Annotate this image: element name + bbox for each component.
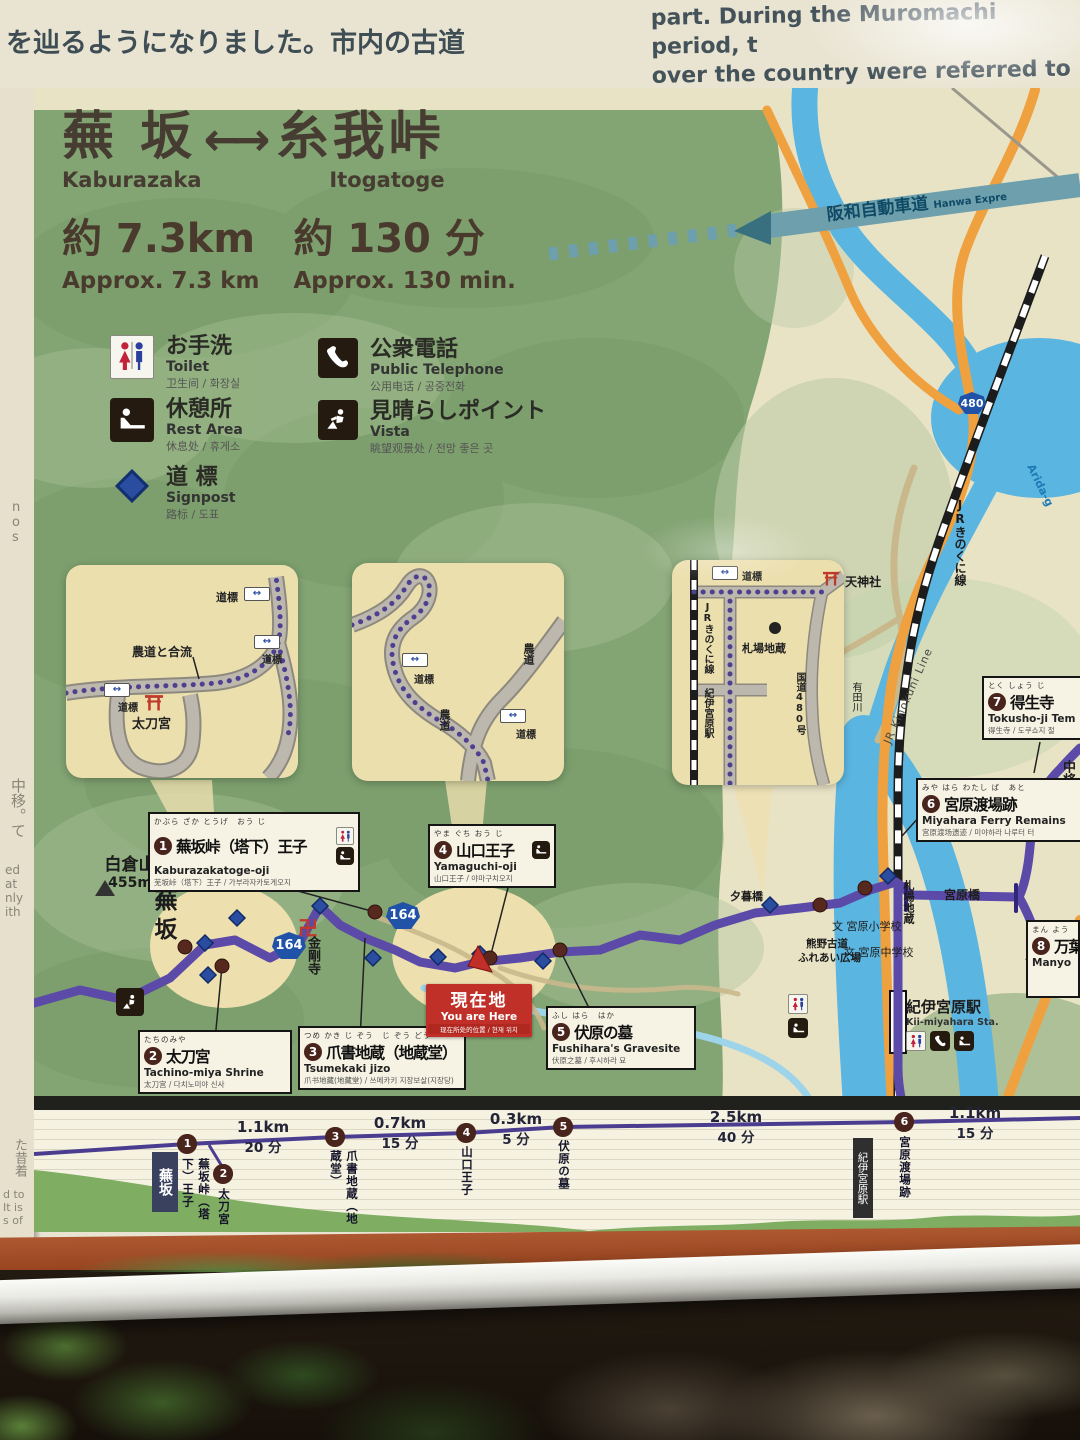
farm-road-note: 農道 <box>520 643 536 665</box>
vista-icon <box>318 400 358 440</box>
origin-name: 蕪 坂 Kaburazaka <box>62 108 201 192</box>
legend-label-cjk: 卫生间 / 화장실 <box>166 375 240 391</box>
segment-km: 2.5km <box>691 1108 781 1126</box>
spot-box-kaburazakatoge-oji: かぶら ざか とうげ おう じ 1 蕪坂峠（塔下）王子 Kaburazakato… <box>148 812 360 892</box>
toilet-icon <box>906 1031 926 1051</box>
toilet-icon <box>336 827 354 845</box>
spot-box-miyahara-ferry: みや はら わたし ば あと 6 宮原渡場跡 Miyahara Ferry Re… <box>916 778 1080 842</box>
legend-label-en: Public Telephone <box>370 362 504 378</box>
segment-km: 0.3km <box>471 1110 561 1128</box>
rest-area-icon <box>336 847 354 865</box>
spot-name-jp: 伏原の墓 <box>574 1021 632 1043</box>
segment-min: 15 分 <box>930 1122 1020 1142</box>
legend-label-en: Vista <box>370 424 546 440</box>
signpost-note: 道標 <box>516 726 536 741</box>
spot-furigana: かぶら ざか とうげ おう じ <box>154 816 354 827</box>
spot-box-manyo: まん よう 8 万葉 Manyo <box>1026 920 1080 998</box>
profile-stop-number: 3 <box>326 1127 345 1146</box>
time-en: Approx. 130 min. <box>293 268 515 294</box>
legend-label-jp: 休憩所 <box>166 398 243 422</box>
spot-name-cjk: 得生寺 / 도쿠쇼지 절 <box>988 725 1076 736</box>
profile-stop-label: 宮原渡場跡 <box>897 1136 913 1216</box>
spot-number-badge: 1 <box>154 837 172 855</box>
public-telephone-icon <box>318 338 358 378</box>
blue-sign-icon: ↔ <box>254 635 280 649</box>
jizo-dot <box>769 622 781 634</box>
legend-label-en: Signpost <box>166 490 236 506</box>
profile-stop-label: 蕪坂峠（塔下）王子 <box>180 1158 212 1232</box>
spot-name-cjk: 山口王子 / 야마구치오지 <box>434 873 550 884</box>
profile-stop-label: 太刀宮 <box>216 1188 232 1232</box>
toilet-icon <box>788 994 808 1014</box>
junior-high-label: 文 宮原中学校 <box>844 944 914 960</box>
legend-label-cjk: 公用电话 / 공중전화 <box>370 378 504 394</box>
spot-furigana: ふし はら はか <box>552 1010 690 1021</box>
legend-label-cjk: 眺望观景处 / 전망 좋은 곳 <box>370 440 546 456</box>
origin-name-romaji: Kaburazaka <box>62 168 201 192</box>
spot-name-en: Fushihara's Gravesite <box>552 1043 690 1055</box>
tenjin-shrine-text: 天神社 <box>845 575 881 589</box>
legend-label-cjk: 休息处 / 휴게소 <box>166 438 243 454</box>
spot-name-cjk: 宫原渡场遗迹 / 미야하라 나루터 터 <box>922 827 1078 838</box>
spot-furigana: やま ぐち おう じ <box>434 828 550 839</box>
distance-jp: 約 7.3km <box>62 206 259 264</box>
spot-name-en: Yamaguchi-oji <box>434 861 550 873</box>
spot-name-jp: 宮原渡場跡 <box>944 793 1017 815</box>
arida-river-jp-label: 有田川 <box>848 682 863 712</box>
station-jp: 紀伊宮原駅 <box>906 996 999 1017</box>
route-title-block: 蕪 坂 Kaburazaka ←→ 糸我峠 Itogatoge 約 7.3km … <box>62 108 542 294</box>
legend-item-toilet: お手洗 Toilet 卫生间 / 화장실 <box>110 335 240 391</box>
inset3-roads <box>672 560 844 785</box>
spot-name-en: Miyahara Ferry Remains <box>922 815 1078 827</box>
segment-km: 1.1km <box>218 1118 308 1136</box>
spot-box-yamaguchi-oji: やま ぐち おう じ 4 山口王子 Yamaguchi-oji 山口王子 / 야… <box>428 824 556 888</box>
signboard-photo: を辿るようになりました。市内の古道 ができます。 part. During th… <box>0 0 1080 1440</box>
segment-km: 0.7km <box>355 1114 445 1132</box>
profile-stop-number: 1 <box>178 1134 197 1153</box>
segment-distance: 0.7km 15 分 <box>355 1114 445 1152</box>
fudaba-jizo-note: 札場地蔵 <box>742 640 786 656</box>
spot-name-jp: 得生寺 <box>1010 691 1054 713</box>
junior-high-text: 宮原中学校 <box>859 946 914 959</box>
segment-distance: 2.5km 40 分 <box>691 1108 781 1146</box>
you-are-here-box: 現在地 You are Here 现在所处的位置 / 현재 위치 <box>426 984 532 1037</box>
destination-name-romaji: Itogatoge <box>277 168 445 192</box>
legend-label-jp: 道 標 <box>166 466 236 490</box>
inset-map-farm-roads: ↔ 道標 ↔ 道標 農道 農道 <box>352 563 564 781</box>
profile-stop-label: 爪書地蔵（地蔵堂） <box>328 1150 360 1232</box>
spot-number-badge: 5 <box>552 1023 570 1041</box>
jr-line-note: JRきのくに線 <box>700 602 715 674</box>
spot-furigana: とく しょう じ <box>988 680 1076 691</box>
segment-min: 15 分 <box>355 1132 445 1152</box>
spot-name-cjk: 芜坂峠（塔下）王子 / 가부라자카토게오지 <box>154 877 354 888</box>
toilet-icon <box>110 335 154 379</box>
blue-sign-icon: ↔ <box>244 587 270 601</box>
segment-min: 5 分 <box>471 1128 561 1148</box>
tachinomiya-note: 太刀宮 <box>132 713 171 732</box>
signpost-note: 道標 <box>262 651 282 666</box>
route-480-note: 国道480号 <box>792 672 807 735</box>
spot-name-en: Kaburazakatoge-oji <box>154 865 354 877</box>
profile-stop-number: 6 <box>895 1112 914 1131</box>
edge-fragment: n o s <box>12 500 20 545</box>
destination-name-jp: 糸我峠 <box>277 108 445 166</box>
legend-item-signpost: 道 標 Signpost 路标 / 도표 <box>116 466 236 522</box>
legend-item-rest-area: 休憩所 Rest Area 休息处 / 휴게소 <box>110 398 243 454</box>
destination-name: 糸我峠 Itogatoge <box>277 108 445 192</box>
public-telephone-icon <box>930 1031 950 1051</box>
edge-fragment: ed at nly ith <box>5 863 23 919</box>
time-jp: 約 130 分 <box>293 206 515 264</box>
legend-label-en: Rest Area <box>166 422 243 438</box>
spot-box-tokushoji: とく しょう じ 7 得生寺 Tokusho-ji Tem 得生寺 / 도쿠쇼지… <box>982 676 1080 740</box>
signpost-icon <box>115 469 149 503</box>
you-are-here-cjk: 现在所处的位置 / 현재 위치 <box>428 1024 530 1034</box>
profile-stop-label: 伏原の墓 <box>556 1140 572 1218</box>
spot-furigana: みや はら わたし ば あと <box>922 782 1078 793</box>
legend-label-en: Toilet <box>166 359 240 375</box>
kii-miyahara-station-label: 紀伊宮原駅 Kii-miyahara Sta. <box>906 996 999 1051</box>
inset2-roads <box>352 563 564 781</box>
elementary-school-text: 宮原小学校 <box>847 920 902 933</box>
signpost-note: 道標 <box>118 699 138 714</box>
inset-map-tachinomiya: ↔ ↔ ↔ 道標 道標 道標 農道と合流 太刀宮 <box>66 565 298 778</box>
spot-name-jp: 爪書地蔵（地蔵堂） <box>326 1041 457 1063</box>
rest-area-icon <box>788 1018 808 1038</box>
vista-icon <box>116 988 144 1016</box>
tenjin-shrine-label: 天神社 <box>822 570 881 590</box>
school-mark-icon: 文 <box>844 946 855 959</box>
distance-en: Approx. 7.3 km <box>62 268 259 294</box>
spot-name-en: Manyo <box>1032 957 1074 969</box>
blue-sign-icon: ↔ <box>104 683 130 697</box>
blue-sign-icon: ↔ <box>500 709 526 723</box>
legend-label-jp: お手洗 <box>166 335 240 359</box>
spot-furigana: まん よう <box>1032 924 1074 935</box>
legend-label-jp: 見晴らしポイント <box>370 400 546 424</box>
kaburazaka-label: 蕪坂 <box>146 888 180 946</box>
spot-box-tachinomiya: たちのみや 2 太刀宮 Tachino-miya Shrine 太刀宫 / 다치… <box>138 1030 292 1094</box>
signpost-note: 道標 <box>414 671 434 686</box>
profile-stop-label: 山口王子 <box>459 1146 475 1216</box>
profile-start-box: 蕪坂 <box>152 1152 178 1212</box>
profile-terminus-box: 紀伊宮原駅 <box>853 1138 873 1218</box>
route-time: 約 130 分 Approx. 130 min. <box>293 206 515 294</box>
farm-road-merge-note: 農道と合流 <box>132 643 192 660</box>
edge-fragment: た昔着 <box>10 1138 29 1177</box>
double-arrow-icon: ←→ <box>203 112 260 166</box>
spot-name-jp: 蕪坂峠（塔下）王子 <box>176 835 307 857</box>
spot-name-cjk: 伏原之墓 / 후시하라 묘 <box>552 1055 690 1066</box>
route-distance: 約 7.3km Approx. 7.3 km <box>62 206 259 294</box>
spot-box-fushihara-gravesite: ふし はら はか 5 伏原の墓 Fushihara's Gravesite 伏原… <box>546 1006 696 1070</box>
school-mark-icon: 文 <box>832 920 843 933</box>
trail-signboard: を辿るようになりました。市内の古道 ができます。 part. During th… <box>0 0 1080 1268</box>
segment-distance: 1.1km 15 分 <box>930 1104 1020 1142</box>
segment-min: 40 分 <box>691 1126 781 1146</box>
segment-min: 20 分 <box>218 1136 308 1156</box>
kongoji-label: 金剛寺 <box>303 936 322 975</box>
spot-number-badge: 7 <box>988 693 1006 711</box>
legend-item-public-telephone: 公衆電話 Public Telephone 公用电话 / 공중전화 <box>318 338 504 394</box>
yugure-bridge-label: 夕暮橋 <box>730 888 763 904</box>
legend-label-cjk: 路标 / 도표 <box>166 506 236 522</box>
blue-sign-icon: ↔ <box>402 653 428 667</box>
spot-name-cjk: 太刀宫 / 다치노미야 신사 <box>144 1079 286 1090</box>
station-note: 紀伊宮原駅 <box>700 688 715 738</box>
spot-name-en: Tokusho-ji Tem <box>988 713 1076 725</box>
spot-number-badge: 6 <box>922 795 940 813</box>
legend-label-jp: 公衆電話 <box>370 338 504 362</box>
spot-number-badge: 2 <box>144 1047 162 1065</box>
adjacent-panel-edge: n o s 中移。て ed at nly ith た昔着 d to It is … <box>0 88 34 1268</box>
spot-name-jp: 万葉 <box>1054 935 1080 957</box>
edge-fragment: 中移。て <box>8 778 29 838</box>
spot-furigana: たちのみや <box>144 1034 286 1045</box>
you-are-here-en: You are Here <box>428 1011 530 1023</box>
segment-distance: 1.1km 20 分 <box>218 1118 308 1156</box>
profile-stop-number: 2 <box>214 1164 233 1183</box>
elementary-school-label: 文 宮原小学校 <box>832 918 902 934</box>
fudaba-jizo-label: 札場地蔵 <box>900 880 916 924</box>
spot-number-badge: 3 <box>304 1043 322 1061</box>
segment-distance: 0.3km 5 分 <box>471 1110 561 1148</box>
spot-number-badge: 8 <box>1032 937 1050 955</box>
glare-reflection <box>640 515 810 585</box>
spot-number-badge: 4 <box>434 841 452 859</box>
edge-fragment: d to It is s of <box>3 1188 25 1227</box>
rest-area-icon <box>532 841 550 859</box>
station-en: Kii-miyahara Sta. <box>906 1017 999 1028</box>
jr-line-jp-label: JRきのくに線 <box>952 498 969 586</box>
rest-area-icon <box>110 398 154 442</box>
inset-map-station-area: ↔ 道標 JRきのくに線 紀伊宮原駅 札場地蔵 国道480号 <box>672 560 844 785</box>
origin-name-jp: 蕪 坂 <box>62 108 201 166</box>
torii-icon <box>144 693 164 711</box>
rest-area-icon <box>954 1031 974 1051</box>
spot-name-en: Tachino-miya Shrine <box>144 1067 286 1079</box>
you-are-here-jp: 現在地 <box>428 986 530 1011</box>
spot-name-en: Tsumekaki jizo <box>304 1063 460 1075</box>
farm-road-note: 農道 <box>436 709 452 731</box>
legend-item-vista: 見晴らしポイント Vista 眺望观景处 / 전망 좋은 곳 <box>318 400 546 456</box>
segment-km: 1.1km <box>930 1104 1020 1122</box>
kumano-plaza-label1: 熊野古道 <box>806 936 848 951</box>
spot-name-cjk: 爪书地藏(地藏堂) / 쓰메카키 지장보살(지장당) <box>304 1075 460 1086</box>
intro-jp-line1: を辿るようになりました。市内の古道 <box>6 28 465 59</box>
miyahara-bridge-label: 宮原橋 <box>944 886 980 903</box>
signpost-note: 道標 <box>216 589 238 605</box>
spot-name-jp: 太刀宮 <box>166 1045 210 1067</box>
spot-name-jp: 山口王子 <box>456 839 514 861</box>
torii-icon <box>822 570 840 586</box>
